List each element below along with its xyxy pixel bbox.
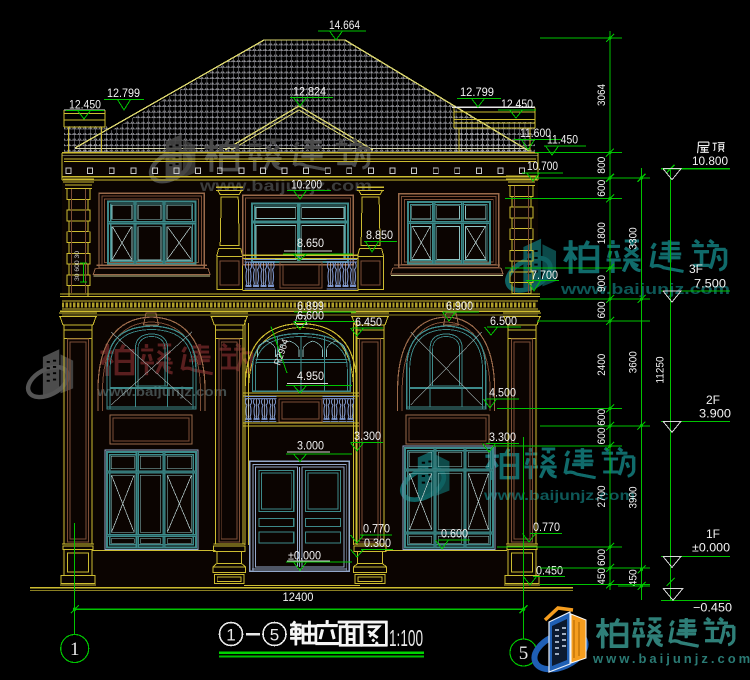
svg-text:6.900: 6.900 [446,301,473,313]
svg-text:3.300: 3.300 [489,432,516,444]
svg-text:11.450: 11.450 [547,135,578,147]
svg-text:14.664: 14.664 [329,20,361,32]
svg-text:12.824: 12.824 [293,87,327,99]
svg-text:600: 600 [596,409,608,426]
svg-text:1F: 1F [706,527,720,541]
svg-text:±0.000: ±0.000 [692,541,730,555]
svg-text:2400: 2400 [596,354,608,376]
svg-text:12.450: 12.450 [69,100,101,112]
svg-text:1:100: 1:100 [389,625,423,651]
svg-text:600: 600 [596,180,608,197]
svg-text:3.000: 3.000 [297,441,324,453]
svg-text:4.500: 4.500 [489,388,516,400]
svg-text:12.799: 12.799 [460,87,494,99]
svg-text:3300: 3300 [628,227,640,249]
svg-text:4.950: 4.950 [297,371,324,383]
svg-text:600: 600 [596,549,608,566]
svg-text:30 600 30: 30 600 30 [75,250,81,281]
svg-text:3064: 3064 [596,84,608,106]
svg-text:450: 450 [596,568,608,585]
svg-text:3F: 3F [689,262,703,276]
svg-text:1: 1 [226,626,235,645]
svg-text:1800: 1800 [596,222,608,244]
svg-text:8.650: 8.650 [297,238,324,250]
svg-text:0.450: 0.450 [536,566,563,578]
svg-text:6.600: 6.600 [297,311,324,323]
svg-text:11250: 11250 [655,357,667,384]
svg-text:450: 450 [628,569,640,586]
svg-text:8.850: 8.850 [366,230,393,242]
svg-text:600: 600 [596,428,608,445]
svg-text:6.500: 6.500 [490,316,517,328]
svg-text:2F: 2F [706,393,720,407]
svg-text:600: 600 [596,302,608,319]
svg-text:0.300: 0.300 [364,538,391,550]
svg-text:12.799: 12.799 [107,88,140,100]
svg-text:800: 800 [596,157,608,174]
svg-text:0.770: 0.770 [533,522,560,534]
svg-text:3900: 3900 [628,487,640,509]
svg-text:www.baijunjz.com: www.baijunjz.com [199,178,372,195]
svg-text:12400: 12400 [283,592,314,604]
svg-text:0.600: 0.600 [441,529,468,541]
svg-text:900: 900 [596,275,608,292]
svg-text:7.500: 7.500 [694,277,726,291]
svg-text:5: 5 [270,626,279,645]
svg-text:www.baijunjz.com: www.baijunjz.com [483,487,635,503]
svg-text:www.baijunjz.com: www.baijunjz.com [592,651,750,666]
svg-text:www.baijunjz.com: www.baijunjz.com [96,385,227,399]
svg-text:3.300: 3.300 [354,431,381,443]
svg-text:5: 5 [519,643,529,664]
svg-text:10.800: 10.800 [692,154,728,168]
svg-text:3600: 3600 [628,351,640,373]
svg-text:12.450: 12.450 [501,99,533,111]
svg-text:−0.450: −0.450 [693,601,732,615]
svg-text:3.900: 3.900 [699,407,731,421]
svg-text:6.450: 6.450 [355,317,382,329]
svg-text:1: 1 [70,639,80,660]
svg-text:0.770: 0.770 [363,524,390,536]
svg-text:2700: 2700 [596,486,608,508]
svg-text:10.200: 10.200 [291,180,322,192]
svg-text:10.700: 10.700 [527,161,558,173]
